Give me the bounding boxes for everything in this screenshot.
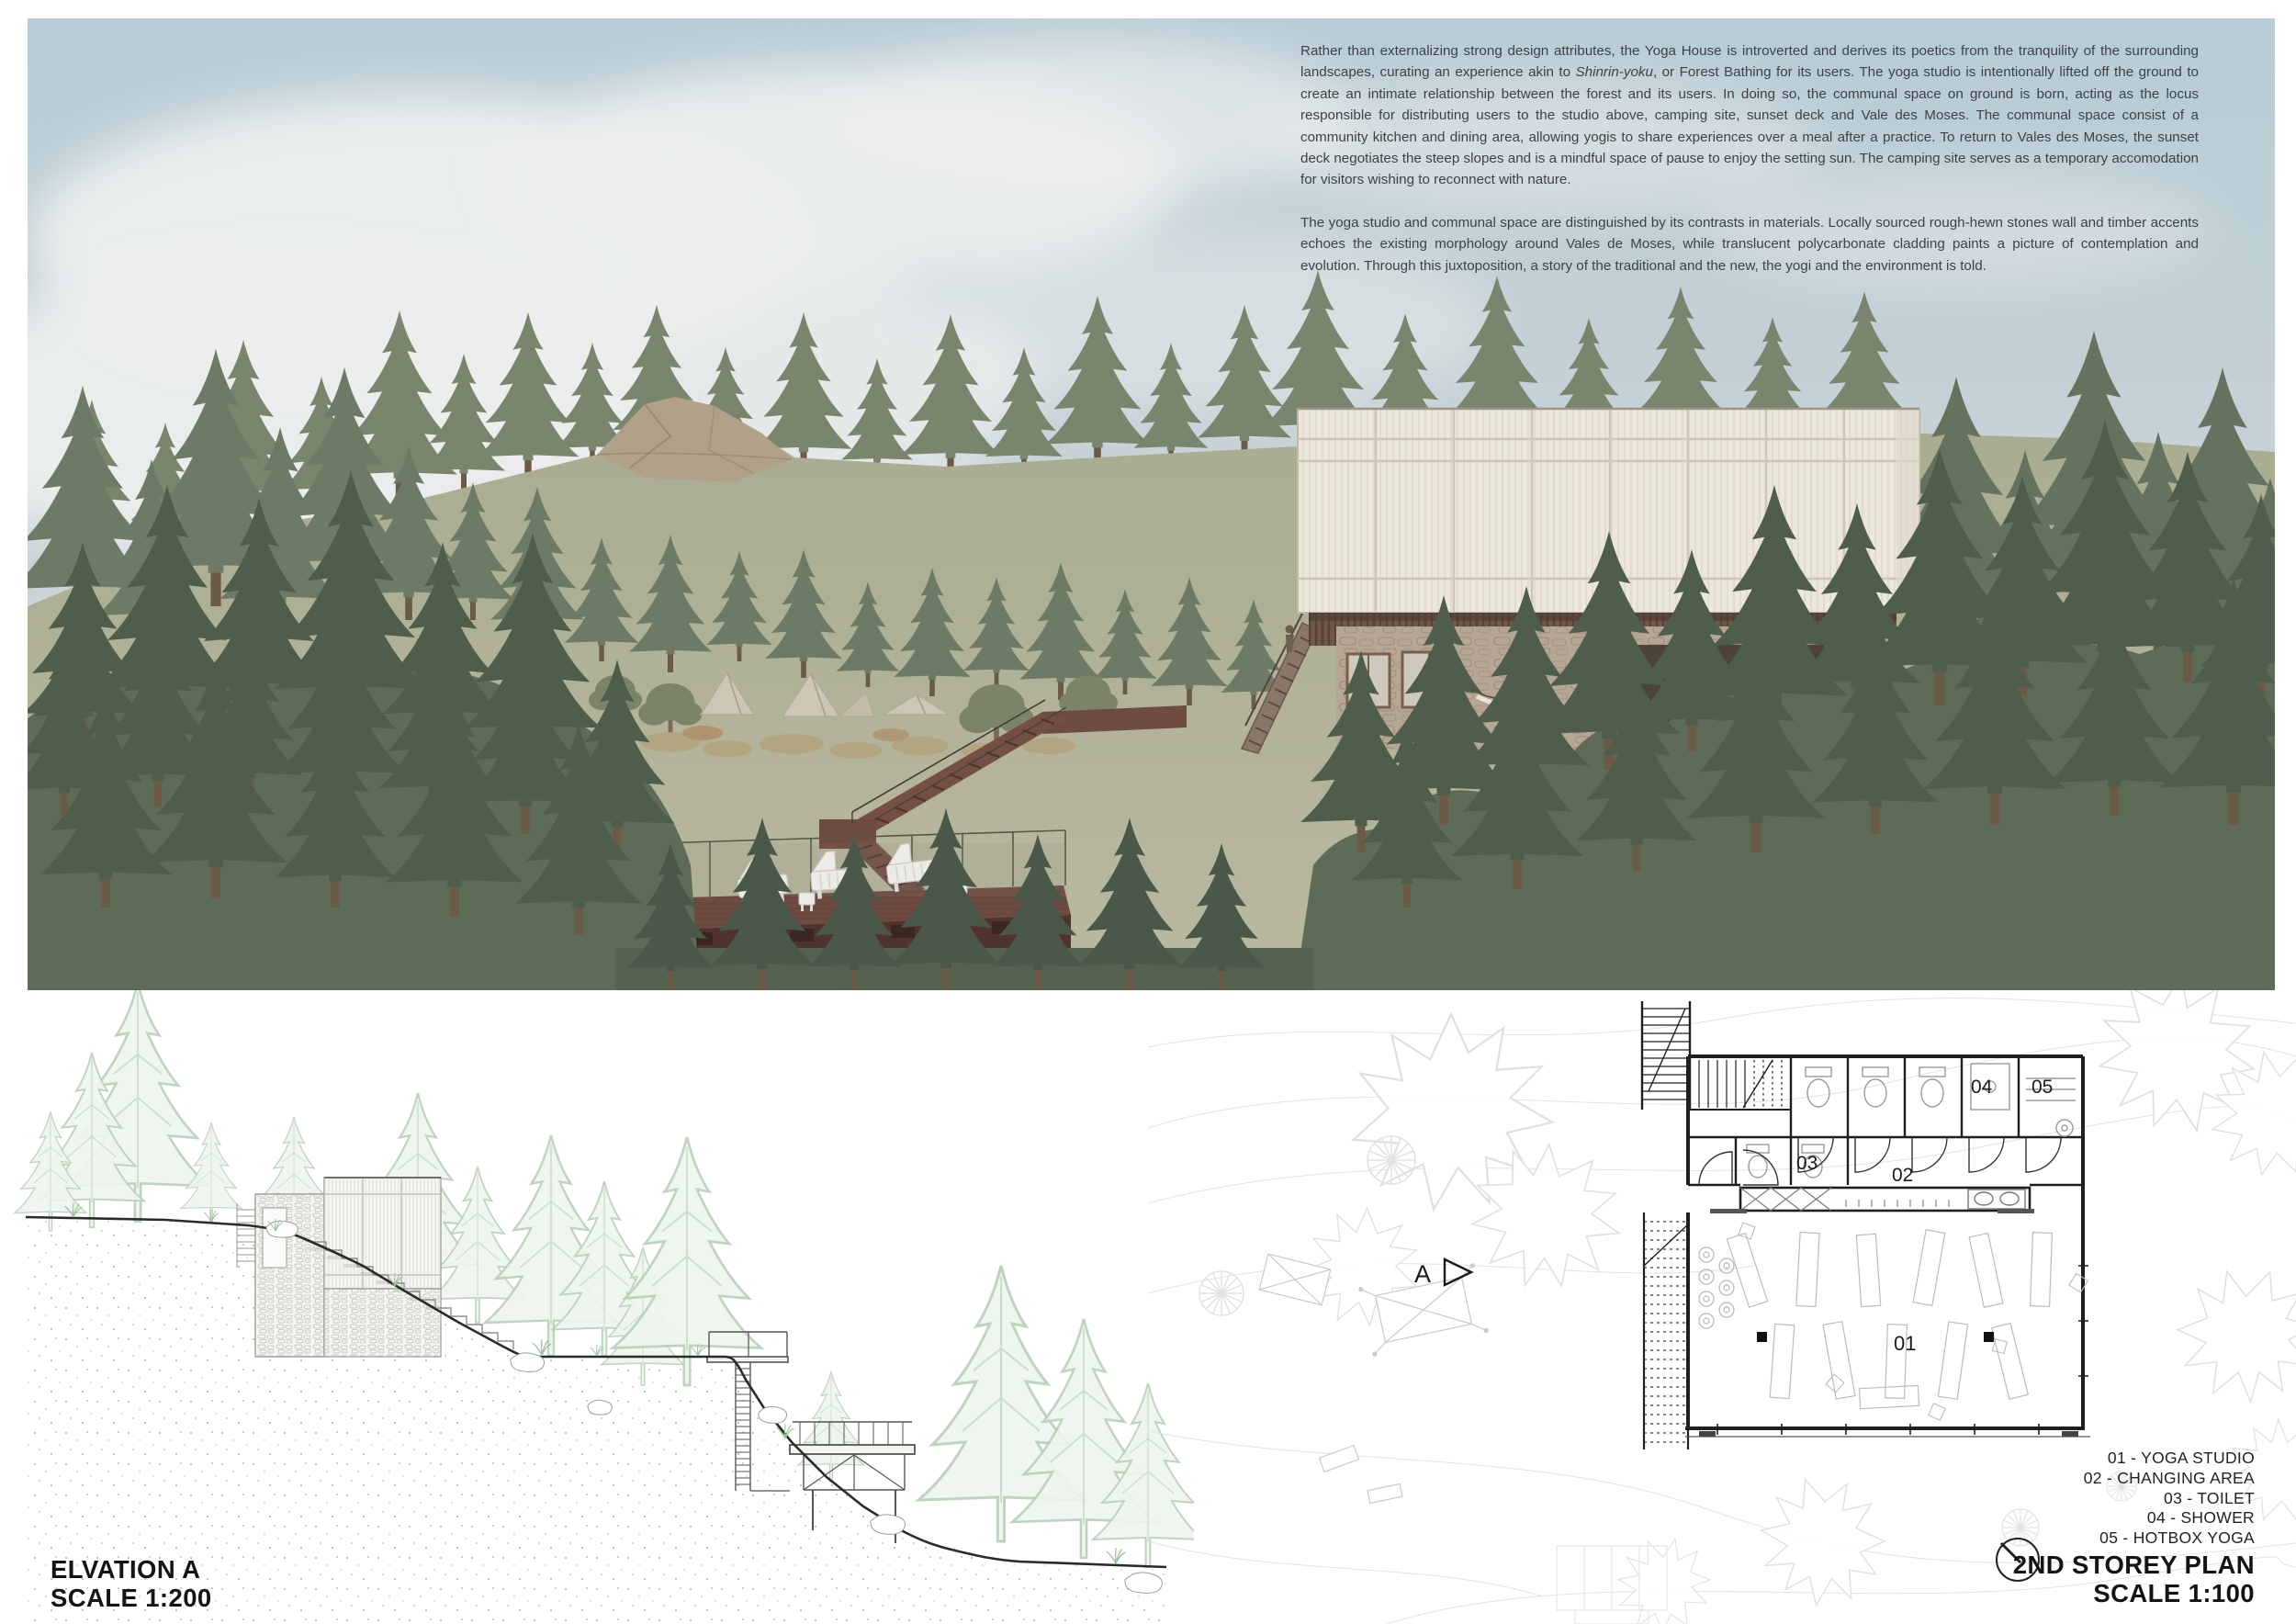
description-paragraph-2: The yoga studio and communal space are d…	[1300, 212, 2199, 276]
yoga-mats	[1727, 1230, 2052, 1409]
elevation-title: ELVATION A	[51, 1556, 212, 1585]
plan-exterior-stair-lower	[1644, 1212, 1688, 1449]
legend-item-02: 02 - CHANGING AREA	[2084, 1469, 2255, 1489]
floor-plan-drawing: A	[1148, 990, 2296, 1624]
rolled-mats	[1699, 1247, 1734, 1328]
plan-scale: SCALE 1:100	[2013, 1580, 2255, 1608]
room-label-02: 02	[1892, 1165, 1913, 1186]
description-paragraph-1: Rather than externalizing strong design …	[1300, 40, 2199, 191]
room-label-01: 01	[1894, 1332, 1916, 1355]
plan-exterior-stair-upper	[1642, 1001, 1690, 1110]
legend-item-04: 04 - SHOWER	[2084, 1508, 2255, 1528]
structural-columns	[1757, 1332, 1994, 1342]
pillows	[1739, 1223, 2088, 1420]
plan-building	[1685, 1056, 2090, 1437]
section-marker-letter: A	[1414, 1260, 1431, 1288]
elevation-illustration	[0, 990, 1194, 1624]
room-label-04: 04	[1971, 1077, 1993, 1098]
project-description: Rather than externalizing strong design …	[1300, 40, 2199, 298]
architectural-render: Rather than externalizing strong design …	[28, 18, 2275, 990]
elevation-scale: SCALE 1:200	[51, 1585, 212, 1613]
presentation-board: Rather than externalizing strong design …	[0, 0, 2296, 1624]
changing-bench	[1710, 1188, 2034, 1213]
legend-item-03: 03 - TOILET	[2084, 1489, 2255, 1509]
elevation-title-block: ELVATION A SCALE 1:200	[51, 1556, 212, 1612]
legend-item-05: 05 - HOTBOX YOGA	[2084, 1528, 2255, 1549]
room-label-05: 05	[2032, 1077, 2053, 1098]
plan-interior-stair	[1688, 1060, 1791, 1110]
room-labels: 01 02 03 04 05	[1796, 1077, 2053, 1355]
elevation-drawing: ELVATION A SCALE 1:200	[0, 990, 1194, 1624]
plan-title: 2ND STOREY PLAN	[2013, 1551, 2255, 1580]
plan-legend: 01 - YOGA STUDIO 02 - CHANGING AREA 03 -…	[2084, 1449, 2255, 1549]
legend-item-01: 01 - YOGA STUDIO	[2084, 1449, 2255, 1469]
room-label-03: 03	[1796, 1153, 1818, 1174]
italic-term: Shinrin-yoku	[1576, 64, 1653, 80]
toilet-fixtures	[1747, 1067, 1945, 1178]
plan-title-block: 2ND STOREY PLAN SCALE 1:100	[2013, 1551, 2255, 1607]
